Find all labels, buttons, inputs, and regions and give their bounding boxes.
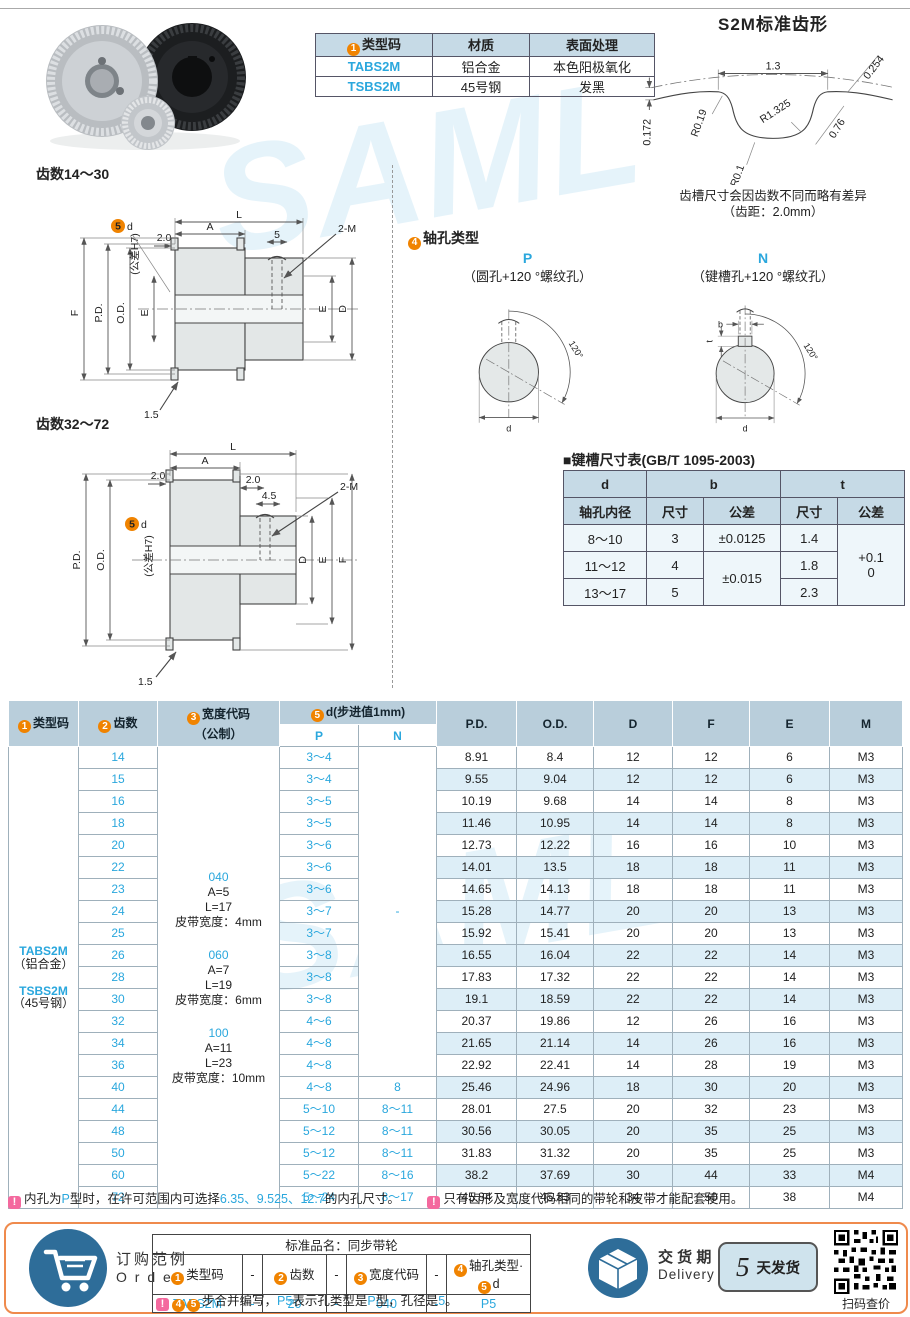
e-cell: 33 bbox=[750, 1165, 830, 1187]
spec-row: 263～816.5516.04222214M3 bbox=[9, 945, 903, 967]
dim-PD: P.D. bbox=[71, 550, 83, 569]
dim-L: L bbox=[230, 441, 236, 453]
p-cell: 5～22 bbox=[280, 1165, 359, 1187]
m-cell: M3 bbox=[830, 835, 903, 857]
cart-icon bbox=[26, 1226, 110, 1310]
dim-E-left: E bbox=[139, 309, 151, 316]
order-col-width: 3宽度代码 bbox=[347, 1255, 427, 1295]
bore-range: 8～10 bbox=[564, 525, 647, 552]
type-code: TABS2M bbox=[316, 56, 433, 76]
header-M: M bbox=[830, 701, 903, 747]
od-cell: 18.59 bbox=[517, 989, 594, 1011]
e-cell: 13 bbox=[750, 901, 830, 923]
f-cell: 32 bbox=[673, 1099, 750, 1121]
badge-2-icon: 2 bbox=[274, 1272, 287, 1285]
d-cell: 20 bbox=[594, 1121, 673, 1143]
n-cell: 8～11 bbox=[359, 1099, 437, 1121]
d-cell: 20 bbox=[594, 1099, 673, 1121]
f-cell: 20 bbox=[673, 901, 750, 923]
pd-cell: 9.55 bbox=[437, 769, 517, 791]
header-d: 5d(步进值1mm) bbox=[280, 701, 437, 725]
p-cell: 3～5 bbox=[280, 791, 359, 813]
teeth-cell: 44 bbox=[79, 1099, 158, 1121]
pd-cell: 22.92 bbox=[437, 1055, 517, 1077]
type-table-row: TSBS2M 45号钢 发黑 bbox=[316, 76, 655, 96]
badge-5-icon: 5 bbox=[115, 221, 121, 233]
m-cell: M3 bbox=[830, 1077, 903, 1099]
od-cell: 19.86 bbox=[517, 1011, 594, 1033]
keyway-table-title: ■键槽尺寸表(GB/T 1095-2003) bbox=[563, 450, 755, 470]
shaft-hole-n-diagram: b t 120° d bbox=[658, 285, 868, 435]
dim-2M: 2-M bbox=[338, 223, 356, 235]
dim-OD: O.D. bbox=[115, 302, 127, 324]
od-cell: 9.04 bbox=[517, 769, 594, 791]
f-cell: 14 bbox=[673, 791, 750, 813]
d-cell: 22 bbox=[594, 945, 673, 967]
m-cell: M3 bbox=[830, 1099, 903, 1121]
d-cell: 12 bbox=[594, 1011, 673, 1033]
od-cell: 14.13 bbox=[517, 879, 594, 901]
e-cell: 16 bbox=[750, 1033, 830, 1055]
order-dash: - bbox=[243, 1255, 263, 1295]
f-cell: 22 bbox=[673, 967, 750, 989]
header-n: N bbox=[359, 725, 437, 747]
od-cell: 12.22 bbox=[517, 835, 594, 857]
d-cell: 18 bbox=[594, 1077, 673, 1099]
order-dash: - bbox=[427, 1255, 447, 1295]
n-cell: 8～16 bbox=[359, 1165, 437, 1187]
note-bore-sizes: !内孔为P型时，在许可范围内可选择6.35、9.525、12.7的内孔尺寸。 bbox=[8, 1192, 403, 1206]
e-cell: 16 bbox=[750, 1011, 830, 1033]
teeth-cell: 32 bbox=[79, 1011, 158, 1033]
delivery-label: 交 货 期 Delivery bbox=[658, 1246, 715, 1282]
dim-E: E bbox=[317, 556, 329, 563]
qr-caption: 扫码查价 bbox=[830, 1295, 902, 1312]
teeth-cell: 18 bbox=[79, 813, 158, 835]
badge-5-icon: 5 bbox=[187, 1299, 200, 1312]
e-cell: 6 bbox=[750, 769, 830, 791]
e-cell: 19 bbox=[750, 1055, 830, 1077]
teeth-cell: 25 bbox=[79, 923, 158, 945]
dim-4-5: 4.5 bbox=[262, 490, 277, 502]
dim-b: b bbox=[718, 320, 723, 330]
type-table-header-code: 1类型码 bbox=[316, 34, 433, 57]
teeth-cell: 16 bbox=[79, 791, 158, 813]
tooth-profile-diagram: 1.3 0.254 R1.325 R0.19 0.76 0.172 R0.1 bbox=[640, 35, 906, 185]
dim-d: d bbox=[506, 424, 511, 434]
finish: 发黑 bbox=[530, 76, 655, 96]
spec-row: 605～228～1638.237.69304433M4 bbox=[9, 1165, 903, 1187]
teeth-cell: 14 bbox=[79, 747, 158, 769]
p-cell: 5～12 bbox=[280, 1143, 359, 1165]
teeth-cell: 20 bbox=[79, 835, 158, 857]
material: 45号钢 bbox=[433, 76, 530, 96]
m-cell: M3 bbox=[830, 813, 903, 835]
spec-row: 344～821.6521.14142616M3 bbox=[9, 1033, 903, 1055]
keyway-header-bore: 轴孔内径 bbox=[564, 498, 647, 525]
exclamation-icon: ! bbox=[427, 1196, 440, 1209]
keyway-table: d b t 轴孔内径 尺寸 公差 尺寸 公差 8～10 3 ±0.0125 1.… bbox=[563, 470, 905, 606]
t-size: 1.8 bbox=[781, 552, 838, 579]
dim-120: 120° bbox=[566, 339, 585, 361]
p-cell: 4～8 bbox=[280, 1077, 359, 1099]
dim-r1325: R1.325 bbox=[758, 97, 793, 126]
width-code-cell: 040A=5L=17皮带宽度：4mm 060A=7L=19皮带宽度：6mm 10… bbox=[158, 747, 280, 1209]
m-cell: M3 bbox=[830, 857, 903, 879]
m-cell: M3 bbox=[830, 901, 903, 923]
spec-row: 223～614.0113.5181811M3 bbox=[9, 857, 903, 879]
e-cell: 6 bbox=[750, 747, 830, 769]
spec-row: 324～620.3719.86122616M3 bbox=[9, 1011, 903, 1033]
header-teeth: 2齿数 bbox=[79, 701, 158, 747]
od-cell: 9.68 bbox=[517, 791, 594, 813]
d-cell: 14 bbox=[594, 813, 673, 835]
catalog-page: SAML SAML 1类型码 材质 表面处理 TABS2M bbox=[0, 0, 910, 1317]
type-table: 1类型码 材质 表面处理 TABS2M 铝合金 本色阳极氧化 TSBS2M 45… bbox=[315, 33, 655, 97]
f-cell: 18 bbox=[673, 879, 750, 901]
dim-A: A bbox=[201, 455, 208, 467]
shaft-hole-p-label: P bbox=[420, 250, 635, 266]
section-divider bbox=[392, 165, 393, 688]
type-code: TSBS2M bbox=[316, 76, 433, 96]
dim-120: 120° bbox=[802, 341, 821, 362]
dim-A: A bbox=[206, 221, 213, 233]
t-tol: +0.10 bbox=[838, 525, 905, 606]
badge-2-icon: 2 bbox=[98, 720, 111, 733]
tooth-profile-title: S2M标准齿形 bbox=[640, 10, 906, 35]
delivery-days: 5 bbox=[736, 1252, 750, 1283]
f-cell: 22 bbox=[673, 989, 750, 1011]
spec-row: 505～128～1131.8331.32203525M3 bbox=[9, 1143, 903, 1165]
d-cell: 18 bbox=[594, 879, 673, 901]
m-cell: M3 bbox=[830, 1011, 903, 1033]
teeth-cell: 40 bbox=[79, 1077, 158, 1099]
exclamation-icon: ! bbox=[156, 1298, 169, 1311]
n-merged-cell: - bbox=[359, 747, 437, 1077]
material: 铝合金 bbox=[433, 56, 530, 76]
f-cell: 16 bbox=[673, 835, 750, 857]
keyway-row: 8～10 3 ±0.0125 1.4 +0.10 bbox=[564, 525, 905, 552]
m-cell: M3 bbox=[830, 747, 903, 769]
tooth-profile-block: S2M标准齿形 1.3 0.254 R1.325 R0.19 0.76 0.17… bbox=[640, 10, 906, 220]
f-cell: 35 bbox=[673, 1143, 750, 1165]
pd-cell: 20.37 bbox=[437, 1011, 517, 1033]
dim-tolerance: (公差H7) bbox=[142, 535, 155, 576]
badge-5-icon: 5 bbox=[129, 519, 135, 531]
pd-cell: 19.1 bbox=[437, 989, 517, 1011]
m-cell: M4 bbox=[830, 1165, 903, 1187]
order-product-name: 标准品名：同步带轮 bbox=[153, 1235, 531, 1255]
f-cell: 18 bbox=[673, 857, 750, 879]
teeth-cell: 23 bbox=[79, 879, 158, 901]
pd-cell: 11.46 bbox=[437, 813, 517, 835]
p-cell: 3～5 bbox=[280, 813, 359, 835]
m-cell: M3 bbox=[830, 945, 903, 967]
qr-code bbox=[834, 1230, 898, 1294]
od-cell: 27.5 bbox=[517, 1099, 594, 1121]
p-cell: 5～12 bbox=[280, 1121, 359, 1143]
bore-range: 11～12 bbox=[564, 552, 647, 579]
d-cell: 16 bbox=[594, 835, 673, 857]
keyway-header-tol: 公差 bbox=[838, 498, 905, 525]
od-cell: 30.05 bbox=[517, 1121, 594, 1143]
d-cell: 30 bbox=[594, 1165, 673, 1187]
d-cell: 20 bbox=[594, 901, 673, 923]
p-cell: 4～8 bbox=[280, 1033, 359, 1055]
badge-5-icon: 5 bbox=[311, 709, 324, 722]
badge-4-icon: 4 bbox=[172, 1299, 185, 1312]
d-cell: 14 bbox=[594, 791, 673, 813]
b-tol: ±0.0125 bbox=[703, 525, 780, 552]
od-cell: 17.32 bbox=[517, 967, 594, 989]
dim-d: d bbox=[141, 519, 147, 531]
type-table-header-material: 材质 bbox=[433, 34, 530, 57]
e-cell: 20 bbox=[750, 1077, 830, 1099]
m-cell: M3 bbox=[830, 879, 903, 901]
shaft-hole-n-desc: （键槽孔+120 °螺纹孔） bbox=[648, 266, 878, 285]
pd-cell: 21.65 bbox=[437, 1033, 517, 1055]
teeth-cell: 60 bbox=[79, 1165, 158, 1187]
m-cell: M3 bbox=[830, 769, 903, 791]
m-cell: M3 bbox=[830, 923, 903, 945]
shaft-hole-title: 4轴孔类型 bbox=[408, 228, 479, 250]
badge-4-icon: 4 bbox=[454, 1264, 467, 1277]
delivery-unit: 天发货 bbox=[757, 1257, 801, 1278]
p-cell: 3～8 bbox=[280, 989, 359, 1011]
shaft-hole-n-label: N bbox=[648, 250, 878, 266]
p-cell: 3～8 bbox=[280, 967, 359, 989]
od-cell: 14.77 bbox=[517, 901, 594, 923]
shaft-hole-n-block: N （键槽孔+120 °螺纹孔） b t 120° d bbox=[648, 250, 878, 438]
pd-cell: 16.55 bbox=[437, 945, 517, 967]
e-cell: 10 bbox=[750, 835, 830, 857]
dim-0254: 0.254 bbox=[861, 53, 887, 81]
n-cell: 8～11 bbox=[359, 1121, 437, 1143]
pd-cell: 14.65 bbox=[437, 879, 517, 901]
note-matching: !只有齿形及宽度代码相同的带轮和皮带才能配套使用。 bbox=[427, 1192, 743, 1206]
dim-E-right: E bbox=[317, 305, 329, 312]
pd-cell: 15.28 bbox=[437, 901, 517, 923]
header-pd: P.D. bbox=[437, 701, 517, 747]
order-col-type: 1类型码 bbox=[153, 1255, 243, 1295]
m-cell: M3 bbox=[830, 967, 903, 989]
finish: 本色阳极氧化 bbox=[530, 56, 655, 76]
header-F: F bbox=[673, 701, 750, 747]
tooth-profile-note: 齿槽尺寸会因齿数不同而略有差异 bbox=[640, 188, 906, 204]
spec-row: 283～817.8317.32222214M3 bbox=[9, 967, 903, 989]
f-cell: 28 bbox=[673, 1055, 750, 1077]
m-cell: M3 bbox=[830, 1121, 903, 1143]
dim-PD: P.D. bbox=[93, 303, 105, 322]
f-cell: 14 bbox=[673, 813, 750, 835]
dim-1-3: 1.3 bbox=[766, 60, 781, 72]
od-cell: 10.95 bbox=[517, 813, 594, 835]
product-photo bbox=[20, 15, 270, 155]
dim-d: d bbox=[127, 221, 133, 233]
dim-r019: R0.19 bbox=[689, 108, 710, 139]
p-cell: 3～7 bbox=[280, 923, 359, 945]
pd-cell: 12.73 bbox=[437, 835, 517, 857]
spec-row: 253～715.9215.41202013M3 bbox=[9, 923, 903, 945]
d-cell: 18 bbox=[594, 857, 673, 879]
m-cell: M3 bbox=[830, 1143, 903, 1165]
p-cell: 3～6 bbox=[280, 879, 359, 901]
pd-cell: 10.19 bbox=[437, 791, 517, 813]
dim-OD: O.D. bbox=[95, 549, 107, 571]
f-cell: 12 bbox=[673, 747, 750, 769]
dim-L: L bbox=[236, 209, 242, 221]
shaft-hole-p-desc: （圆孔+120 °螺纹孔） bbox=[420, 266, 635, 285]
p-cell: 5～10 bbox=[280, 1099, 359, 1121]
pd-cell: 14.01 bbox=[437, 857, 517, 879]
d-cell: 12 bbox=[594, 747, 673, 769]
teeth-cell: 28 bbox=[79, 967, 158, 989]
spec-row: 183～511.4610.9514148M3 bbox=[9, 813, 903, 835]
delivery-box-icon bbox=[586, 1236, 650, 1300]
pd-cell: 38.2 bbox=[437, 1165, 517, 1187]
pd-cell: 15.92 bbox=[437, 923, 517, 945]
e-cell: 23 bbox=[750, 1099, 830, 1121]
p-cell: 3～4 bbox=[280, 769, 359, 791]
b-size: 4 bbox=[647, 552, 704, 579]
keyway-header-size: 尺寸 bbox=[781, 498, 838, 525]
bore-range: 13～17 bbox=[564, 579, 647, 606]
type-code-cell: TABS2M （铝合金） TSBS2M （45号钢） bbox=[9, 747, 79, 1209]
keyway-header-t: t bbox=[781, 471, 905, 498]
p-cell: 3～6 bbox=[280, 835, 359, 857]
pd-cell: 25.46 bbox=[437, 1077, 517, 1099]
b-tol: ±0.015 bbox=[703, 552, 780, 606]
badge-3-icon: 3 bbox=[187, 712, 200, 725]
f-cell: 22 bbox=[673, 945, 750, 967]
p-cell: 3～7 bbox=[280, 901, 359, 923]
teeth-cell: 15 bbox=[79, 769, 158, 791]
badge-4-icon: 4 bbox=[408, 237, 421, 250]
dim-0172: 0.172 bbox=[641, 119, 653, 146]
od-cell: 8.4 bbox=[517, 747, 594, 769]
spec-row: 233～614.6514.13181811M3 bbox=[9, 879, 903, 901]
n-cell: 8 bbox=[359, 1077, 437, 1099]
order-value-hole: P5 bbox=[447, 1295, 531, 1313]
m-cell: M3 bbox=[830, 1033, 903, 1055]
delivery-days-box: 5 天发货 bbox=[718, 1242, 818, 1292]
e-cell: 14 bbox=[750, 967, 830, 989]
badge-3-icon: 3 bbox=[354, 1272, 367, 1285]
e-cell: 11 bbox=[750, 857, 830, 879]
badge-5-icon: 5 bbox=[478, 1281, 491, 1294]
dim-1-5: 1.5 bbox=[138, 676, 153, 688]
p-cell: 3～6 bbox=[280, 857, 359, 879]
badge-1-icon: 1 bbox=[171, 1272, 184, 1285]
d-cell: 20 bbox=[594, 1143, 673, 1165]
dim-5: 5 bbox=[274, 229, 280, 241]
teeth-cell: 24 bbox=[79, 901, 158, 923]
od-cell: 37.69 bbox=[517, 1165, 594, 1187]
pd-cell: 8.91 bbox=[437, 747, 517, 769]
e-cell: 25 bbox=[750, 1121, 830, 1143]
order-col-teeth: 2齿数 bbox=[263, 1255, 327, 1295]
od-cell: 22.41 bbox=[517, 1055, 594, 1077]
spec-row: 243～715.2814.77202013M3 bbox=[9, 901, 903, 923]
od-cell: 21.14 bbox=[517, 1033, 594, 1055]
e-cell: 13 bbox=[750, 923, 830, 945]
e-cell: 11 bbox=[750, 879, 830, 901]
pulley-drawing-14-30: L A 2.0 5 2-M F P.D. O.D. E E D 1.5 5 d … bbox=[20, 180, 385, 424]
header-type-code: 1类型码 bbox=[9, 701, 79, 747]
od-cell: 15.41 bbox=[517, 923, 594, 945]
dim-tolerance: (公差H7) bbox=[128, 233, 141, 274]
dim-d: d bbox=[743, 424, 748, 434]
order-note: !45步合并编写，P5表示孔类型是P型，孔径是5。 bbox=[156, 1290, 458, 1312]
dim-F: F bbox=[337, 557, 349, 563]
e-cell: 25 bbox=[750, 1143, 830, 1165]
d-cell: 12 bbox=[594, 769, 673, 791]
exclamation-icon: ! bbox=[8, 1196, 21, 1209]
e-cell: 14 bbox=[750, 989, 830, 1011]
header-D: D bbox=[594, 701, 673, 747]
pd-cell: 17.83 bbox=[437, 967, 517, 989]
tooth-profile-pitch-note: （齿距：2.0mm） bbox=[640, 204, 906, 220]
spec-row: 445～108～1128.0127.5203223M3 bbox=[9, 1099, 903, 1121]
d-cell: 14 bbox=[594, 1055, 673, 1077]
teeth-cell: 34 bbox=[79, 1033, 158, 1055]
order-dash: - bbox=[327, 1255, 347, 1295]
pd-cell: 28.01 bbox=[437, 1099, 517, 1121]
spec-row: 203～612.7312.22161610M3 bbox=[9, 835, 903, 857]
f-cell: 44 bbox=[673, 1165, 750, 1187]
spec-row: 485～128～1130.5630.05203525M3 bbox=[9, 1121, 903, 1143]
dim-F: F bbox=[69, 310, 81, 316]
dim-t: t bbox=[705, 339, 715, 342]
p-cell: 4～8 bbox=[280, 1055, 359, 1077]
d-cell: 22 bbox=[594, 989, 673, 1011]
keyway-header-size: 尺寸 bbox=[647, 498, 704, 525]
header-p: P bbox=[280, 725, 359, 747]
n-cell: 8～11 bbox=[359, 1143, 437, 1165]
f-cell: 20 bbox=[673, 923, 750, 945]
od-cell: 13.5 bbox=[517, 857, 594, 879]
dim-1-5: 1.5 bbox=[144, 409, 159, 421]
od-cell: 31.32 bbox=[517, 1143, 594, 1165]
e-cell: 8 bbox=[750, 813, 830, 835]
e-cell: 14 bbox=[750, 945, 830, 967]
spec-row: TABS2M （铝合金） TSBS2M （45号钢） 14 040A=5L=17… bbox=[9, 747, 903, 769]
teeth-cell: 48 bbox=[79, 1121, 158, 1143]
badge-1-icon: 1 bbox=[18, 720, 31, 733]
d-cell: 20 bbox=[594, 923, 673, 945]
f-cell: 26 bbox=[673, 1033, 750, 1055]
dim-076: 0.76 bbox=[827, 117, 848, 141]
order-delivery-box: 订购范例 O r d e r 标准品名：同步带轮 1类型码 - 2齿数 - 3宽… bbox=[4, 1222, 908, 1314]
spec-row: 153～49.559.0412126M3 bbox=[9, 769, 903, 791]
f-cell: 26 bbox=[673, 1011, 750, 1033]
footnotes: !内孔为P型时，在许可范围内可选择6.35、9.525、12.7的内孔尺寸。 !… bbox=[8, 1188, 906, 1209]
d-cell: 22 bbox=[594, 967, 673, 989]
type-table-header-finish: 表面处理 bbox=[530, 34, 655, 57]
header-od: O.D. bbox=[517, 701, 594, 747]
f-cell: 35 bbox=[673, 1121, 750, 1143]
teeth-cell: 30 bbox=[79, 989, 158, 1011]
dim-D: D bbox=[297, 556, 309, 564]
e-cell: 8 bbox=[750, 791, 830, 813]
f-cell: 30 bbox=[673, 1077, 750, 1099]
dim-r01: R0.1 bbox=[728, 163, 747, 185]
teeth-cell: 36 bbox=[79, 1055, 158, 1077]
p-cell: 4～6 bbox=[280, 1011, 359, 1033]
keyway-header-d: d bbox=[564, 471, 647, 498]
t-size: 1.4 bbox=[781, 525, 838, 552]
m-cell: M3 bbox=[830, 989, 903, 1011]
